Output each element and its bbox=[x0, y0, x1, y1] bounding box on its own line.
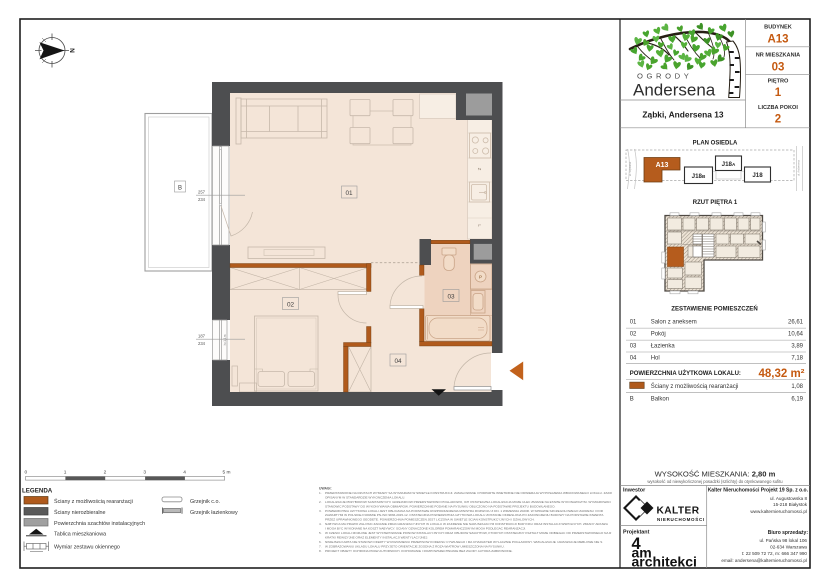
svg-text:ul. Augustowska 8: ul. Augustowska 8 bbox=[770, 496, 807, 501]
svg-text:t: 22 509 72 72, m: 666 347 99: t: 22 509 72 72, m: 666 347 990 bbox=[742, 551, 808, 556]
svg-text:Inwestor: Inwestor bbox=[623, 488, 646, 494]
svg-text:Powierzchnia szachtów instalac: Powierzchnia szachtów instalacyjnych bbox=[54, 521, 145, 527]
svg-text:2.: 2. bbox=[319, 500, 322, 504]
svg-text:1: 1 bbox=[775, 87, 782, 99]
svg-text:LEGENDA: LEGENDA bbox=[22, 488, 53, 495]
svg-text:3,89: 3,89 bbox=[791, 344, 803, 350]
svg-text:Ściany z możliwością rearanżac: Ściany z możliwością rearanżacji bbox=[651, 382, 739, 390]
svg-text:PIĘTRO: PIĘTRO bbox=[768, 78, 789, 84]
svg-text:48,32 m²: 48,32 m² bbox=[758, 368, 804, 380]
svg-text:10,64: 10,64 bbox=[788, 332, 804, 338]
svg-text:Kalter Nieruchomości Projekt 1: Kalter Nieruchomości Projekt 19 Sp. z o.… bbox=[708, 488, 809, 494]
svg-text:234: 234 bbox=[198, 341, 206, 346]
svg-text:Hol: Hol bbox=[651, 356, 660, 362]
svg-text:J18: J18 bbox=[752, 172, 763, 179]
svg-text:ul. Pańska 98 lokal 106: ul. Pańska 98 lokal 106 bbox=[759, 538, 807, 543]
svg-text:Balkon: Balkon bbox=[651, 397, 669, 403]
svg-text:ZAWARTYMI W POLSKIEJ NORMIE PN: ZAWARTYMI W POLSKIEJ NORMIE PN-ISO 9836-… bbox=[325, 513, 604, 517]
svg-text:OGRODY: OGRODY bbox=[637, 72, 692, 81]
svg-text:NINIEJSZA KARTA NIE STANOWI OF: NINIEJSZA KARTA NIE STANOWI OFERTY W ROZ… bbox=[325, 540, 602, 544]
svg-text:Grzejnik łazienkowy: Grzejnik łazienkowy bbox=[190, 510, 238, 516]
svg-text:Tablica mieszkaniowa: Tablica mieszkaniowa bbox=[54, 531, 106, 537]
svg-text:7,18: 7,18 bbox=[791, 356, 803, 362]
svg-text:LOKALIZACJE PRZYBOROW SANITARN: LOKALIZACJE PRZYBOROW SANITARNYCH I GRZE… bbox=[325, 500, 611, 504]
svg-text:26,61: 26,61 bbox=[788, 319, 804, 325]
svg-text:04: 04 bbox=[630, 356, 637, 362]
svg-text:NABYWCA MA PRAWO ZGLOSIC ZADAN: NABYWCA MA PRAWO ZGLOSIC ZADANIE ZMIAN A… bbox=[325, 522, 609, 526]
svg-text:OPISANYM W STANDARDZIE WYKONCZ: OPISANYM W STANDARDZIE WYKONCZENIA LOKAL… bbox=[325, 495, 405, 499]
svg-text:LICZBA POKOI: LICZBA POKOI bbox=[758, 105, 798, 111]
svg-text:I MOGA BYC WYKONANE NA KOSZT N: I MOGA BYC WYKONANE NA KOSZT NABYWCY. SC… bbox=[325, 527, 526, 531]
svg-text:15-218 Białystok: 15-218 Białystok bbox=[773, 502, 808, 507]
svg-text:01: 01 bbox=[345, 190, 353, 197]
svg-text:04: 04 bbox=[394, 358, 402, 365]
svg-text:ul. Szpitalna: ul. Szpitalna bbox=[628, 161, 632, 176]
svg-text:Z: Z bbox=[477, 168, 482, 171]
svg-text:PROJEKT OBJETY OCHRONA PRAW AU: PROJEKT OBJETY OCHRONA PRAW AUTORSKICH. … bbox=[325, 549, 513, 553]
svg-text:4.: 4. bbox=[319, 522, 322, 526]
svg-text:WYSOKOŚĆ MIESZKANIA: 2,80 m: WYSOKOŚĆ MIESZKANIA: 2,80 m bbox=[655, 470, 776, 479]
svg-text:PLAN OSIEDLA: PLAN OSIEDLA bbox=[693, 141, 738, 147]
svg-text:Biuro sprzedaży:: Biuro sprzedaży: bbox=[768, 530, 809, 536]
svg-text:email: andersena@kalternieruch: email: andersena@kalternieruchomosci.pl bbox=[721, 558, 807, 563]
svg-text:B: B bbox=[178, 186, 182, 192]
svg-text:UWAGI:: UWAGI: bbox=[319, 487, 332, 491]
svg-text:6.: 6. bbox=[319, 540, 322, 544]
svg-text:Andersena: Andersena bbox=[633, 81, 716, 100]
svg-text:03: 03 bbox=[772, 61, 785, 73]
svg-text:8.: 8. bbox=[319, 549, 322, 553]
svg-text:3.: 3. bbox=[319, 509, 322, 513]
svg-text:NIERUCHOMOŚCI: NIERUCHOMOŚCI bbox=[657, 516, 705, 522]
svg-text:01: 01 bbox=[630, 319, 637, 325]
svg-text:KALTER: KALTER bbox=[657, 506, 700, 517]
svg-text:02: 02 bbox=[287, 302, 295, 309]
svg-text:234: 234 bbox=[198, 197, 206, 202]
svg-text:h=1,1m: h=1,1m bbox=[223, 334, 227, 345]
svg-text:PRZEDSTAWIONE NA RZUTACH WYMIA: PRZEDSTAWIONE NA RZUTACH WYMIARY SA WYMI… bbox=[325, 491, 613, 495]
svg-text:N: N bbox=[68, 48, 75, 53]
svg-text:A13: A13 bbox=[656, 162, 669, 169]
svg-text:W ZOBRAZOWANIU UKLADU LOKALU P: W ZOBRAZOWANIU UKLADU LOKALU PRZYJETO OR… bbox=[325, 544, 505, 548]
svg-text:02: 02 bbox=[630, 332, 637, 338]
svg-text:03: 03 bbox=[447, 294, 455, 301]
svg-text:6,19: 6,19 bbox=[791, 397, 803, 403]
svg-text:Grzejnik c.o.: Grzejnik c.o. bbox=[190, 499, 220, 505]
svg-text:ul. Andersena: ul. Andersena bbox=[797, 160, 801, 176]
svg-text:wysokość od niewykończonej pos: wysokość od niewykończonej posadzki (szl… bbox=[647, 479, 783, 484]
svg-text:architekci: architekci bbox=[632, 554, 697, 570]
svg-text:Ściany nierozbieralne: Ściany nierozbieralne bbox=[54, 508, 106, 516]
svg-text:Łazienka: Łazienka bbox=[651, 344, 676, 350]
svg-text:03: 03 bbox=[630, 344, 637, 350]
svg-text:Pokój: Pokój bbox=[651, 332, 666, 338]
svg-text:5 m: 5 m bbox=[223, 470, 231, 476]
svg-text:KRATKI REWIZYJNE ORAZ ELEMENTY: KRATKI REWIZYJNE ORAZ ELEMENTY INSTALACJ… bbox=[325, 536, 428, 540]
svg-text:Ściany z możliwością rearanżac: Ściany z możliwością rearanżacji bbox=[54, 497, 133, 505]
svg-text:POWIERZCHNIA UŻYTKOWA LOKALU:: POWIERZCHNIA UŻYTKOWA LOKALU: bbox=[630, 370, 741, 377]
svg-text:STANOWIC PODSTAWY DO WYKONYWAN: STANOWIC PODSTAWY DO WYKONYWANIA OBMIARO… bbox=[325, 504, 556, 508]
svg-text:2: 2 bbox=[775, 114, 781, 126]
svg-text:J18A: J18A bbox=[722, 161, 736, 168]
svg-text:1,08: 1,08 bbox=[791, 384, 803, 390]
svg-text:A13: A13 bbox=[767, 34, 788, 46]
svg-text:POWIERZCHNIA UZYTKOWA LOKALI J: POWIERZCHNIA UZYTKOWA LOKALI JEST OBLICZ… bbox=[325, 509, 604, 513]
svg-text:02-634 Warszawa: 02-634 Warszawa bbox=[770, 545, 807, 550]
svg-text:1.: 1. bbox=[319, 491, 322, 495]
svg-text:1: 1 bbox=[64, 470, 67, 476]
svg-text:ZESTAWIENIE POMIESZCZEŃ: ZESTAWIENIE POMIESZCZEŃ bbox=[671, 305, 758, 313]
svg-text:RZUT PIĘTRA 1: RZUT PIĘTRA 1 bbox=[693, 200, 738, 206]
svg-text:4: 4 bbox=[183, 470, 186, 476]
svg-text:2: 2 bbox=[104, 470, 107, 476]
svg-text:B: B bbox=[630, 397, 634, 403]
svg-text:7.: 7. bbox=[319, 544, 322, 548]
svg-text:PRZEZ UPRAWNIONEGO GEODETE. PO: PRZEZ UPRAWNIONEGO GEODETE. POWIERZCHNIA… bbox=[325, 518, 535, 522]
svg-text:BUDYNEK: BUDYNEK bbox=[764, 25, 792, 31]
svg-text:3: 3 bbox=[143, 470, 146, 476]
svg-text:J18B: J18B bbox=[692, 173, 706, 180]
svg-text:Salon z aneksem: Salon z aneksem bbox=[651, 319, 697, 325]
svg-text:Wymiar zestawu okiennego: Wymiar zestawu okiennego bbox=[54, 544, 120, 550]
svg-text:W CZESCI LOKALI MOZLIWE JEST W: W CZESCI LOKALI MOZLIWE JEST WYSTEPOWANI… bbox=[325, 531, 612, 535]
svg-text:NR MIESZKANIA: NR MIESZKANIA bbox=[756, 52, 800, 58]
svg-text:Ząbki, Andersena 13: Ząbki, Andersena 13 bbox=[642, 110, 723, 120]
svg-text:5.: 5. bbox=[319, 531, 322, 535]
svg-text:257: 257 bbox=[198, 190, 206, 195]
svg-text:www.kalternieruchomosci.pl: www.kalternieruchomosci.pl bbox=[750, 509, 807, 514]
svg-text:P: P bbox=[479, 275, 482, 280]
svg-text:187: 187 bbox=[198, 334, 206, 339]
svg-text:0: 0 bbox=[25, 470, 28, 476]
